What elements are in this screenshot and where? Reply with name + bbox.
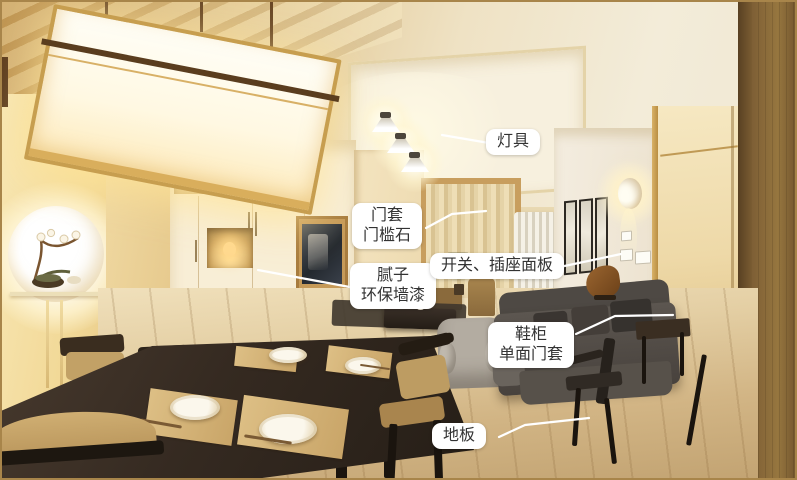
- annotation-wall-paint: 腻子 环保墙漆: [350, 263, 436, 309]
- plate-1: [170, 395, 220, 420]
- annotation-floor: 地板: [432, 423, 486, 449]
- lamp-rod-2: [200, 2, 203, 32]
- socket-panel-2: [635, 250, 651, 264]
- side-table-leg-2: [680, 332, 684, 376]
- annotation-wall-paint-line2: 环保墙漆: [361, 286, 425, 306]
- switch-panel-small: [621, 231, 632, 242]
- annotation-door-casing-line2: 门槛石: [363, 226, 411, 246]
- spotlight-cap-1: [380, 112, 391, 118]
- annotation-shoe-cabinet: 鞋柜 单面门套: [488, 322, 574, 368]
- annotation-door-casing: 门套 门槛石: [352, 203, 422, 249]
- art-panel-2: [579, 198, 592, 273]
- stand-rod-left: [46, 300, 49, 388]
- annotation-switch-socket: 开关、插座面板: [430, 253, 564, 279]
- far-plant-pot: [454, 284, 464, 295]
- annotation-door-casing-line1: 门套: [363, 206, 411, 226]
- sofa-cushion-2: [571, 304, 610, 336]
- lamp-gold-line: [48, 54, 328, 110]
- annotation-floor-text: 地板: [443, 426, 475, 446]
- tv-picture-highlight: [308, 234, 328, 270]
- switch-panel-1: [620, 249, 633, 262]
- annotation-shoe-cabinet-line1: 鞋柜: [499, 325, 563, 345]
- door-grain: [752, 2, 797, 480]
- lamp-rod-3: [270, 2, 273, 50]
- far-wood-chair: [468, 278, 495, 316]
- spotlight-cap-2: [395, 133, 406, 139]
- art-panel-1: [564, 200, 577, 275]
- lamp-left-rail: [2, 57, 8, 107]
- wall-sconce-lamp: [618, 178, 642, 209]
- cabinet-handle-4: [195, 240, 197, 262]
- annotation-switch-socket-text: 开关、插座面板: [441, 256, 553, 276]
- sculpture-base: [594, 295, 616, 300]
- annotation-lighting: 灯具: [486, 129, 540, 155]
- annotation-shoe-cabinet-line2: 单面门套: [499, 345, 563, 365]
- annotation-wall-paint-line1: 腻子: [361, 266, 425, 286]
- cabinet-handle-2: [255, 212, 257, 236]
- annotation-lighting-text: 灯具: [497, 132, 529, 152]
- orchid-arrangement: [12, 216, 100, 294]
- spotlight-cap-3: [409, 152, 420, 158]
- niche-lamp: [223, 242, 236, 257]
- side-table-leg-1: [642, 336, 646, 384]
- plate-3: [269, 347, 307, 363]
- annotated-interior-photo: 灯具 门套 门槛石 腻子 环保墙漆 开关、插座面板 鞋柜 单面门套 地板: [0, 0, 797, 480]
- niche-shelf: [10, 292, 102, 296]
